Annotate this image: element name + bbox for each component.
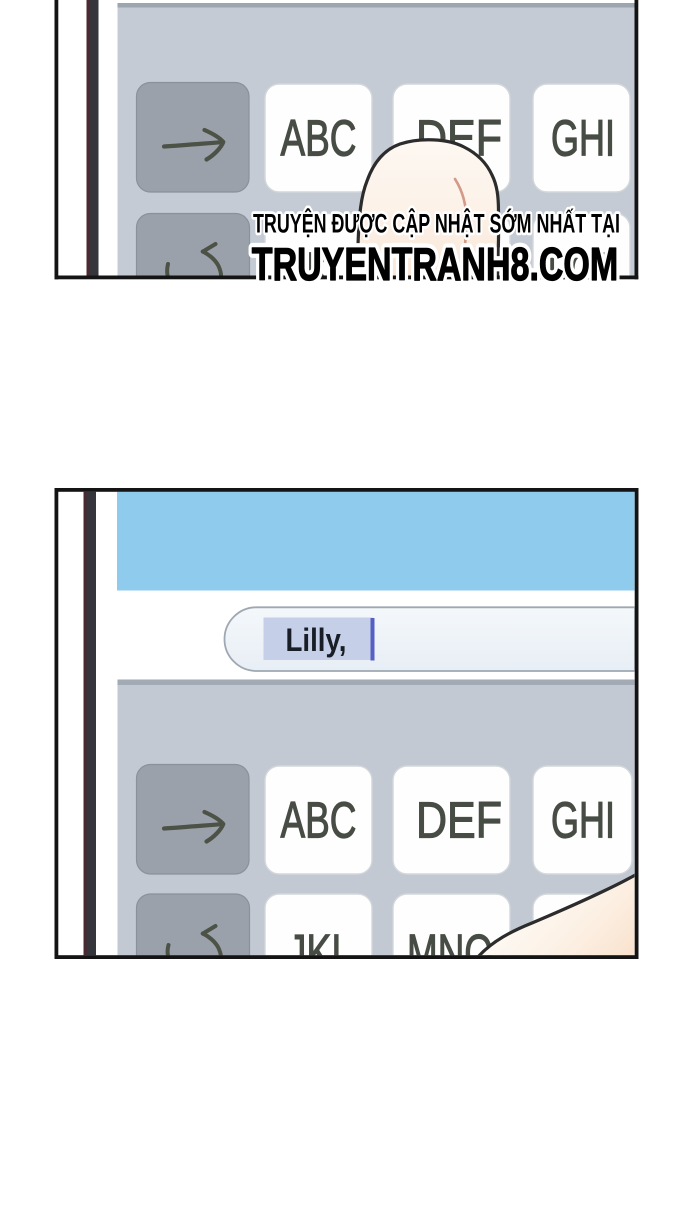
- svg-text:ABC: ABC: [281, 110, 357, 167]
- svg-text:TRUYỆN ĐƯỢC CẬP NHẬT SỚM NHẤT: TRUYỆN ĐƯỢC CẬP NHẬT SỚM NHẤT TẠI: [253, 208, 620, 239]
- svg-text:GHI: GHI: [551, 110, 615, 167]
- svg-text:TRUYENTRANH8.COM: TRUYENTRANH8.COM: [252, 238, 618, 290]
- svg-text:DEF: DEF: [416, 792, 502, 849]
- svg-text:ABC: ABC: [281, 792, 357, 849]
- svg-text:GHI: GHI: [551, 792, 615, 849]
- svg-text:Lilly,: Lilly,: [286, 622, 347, 658]
